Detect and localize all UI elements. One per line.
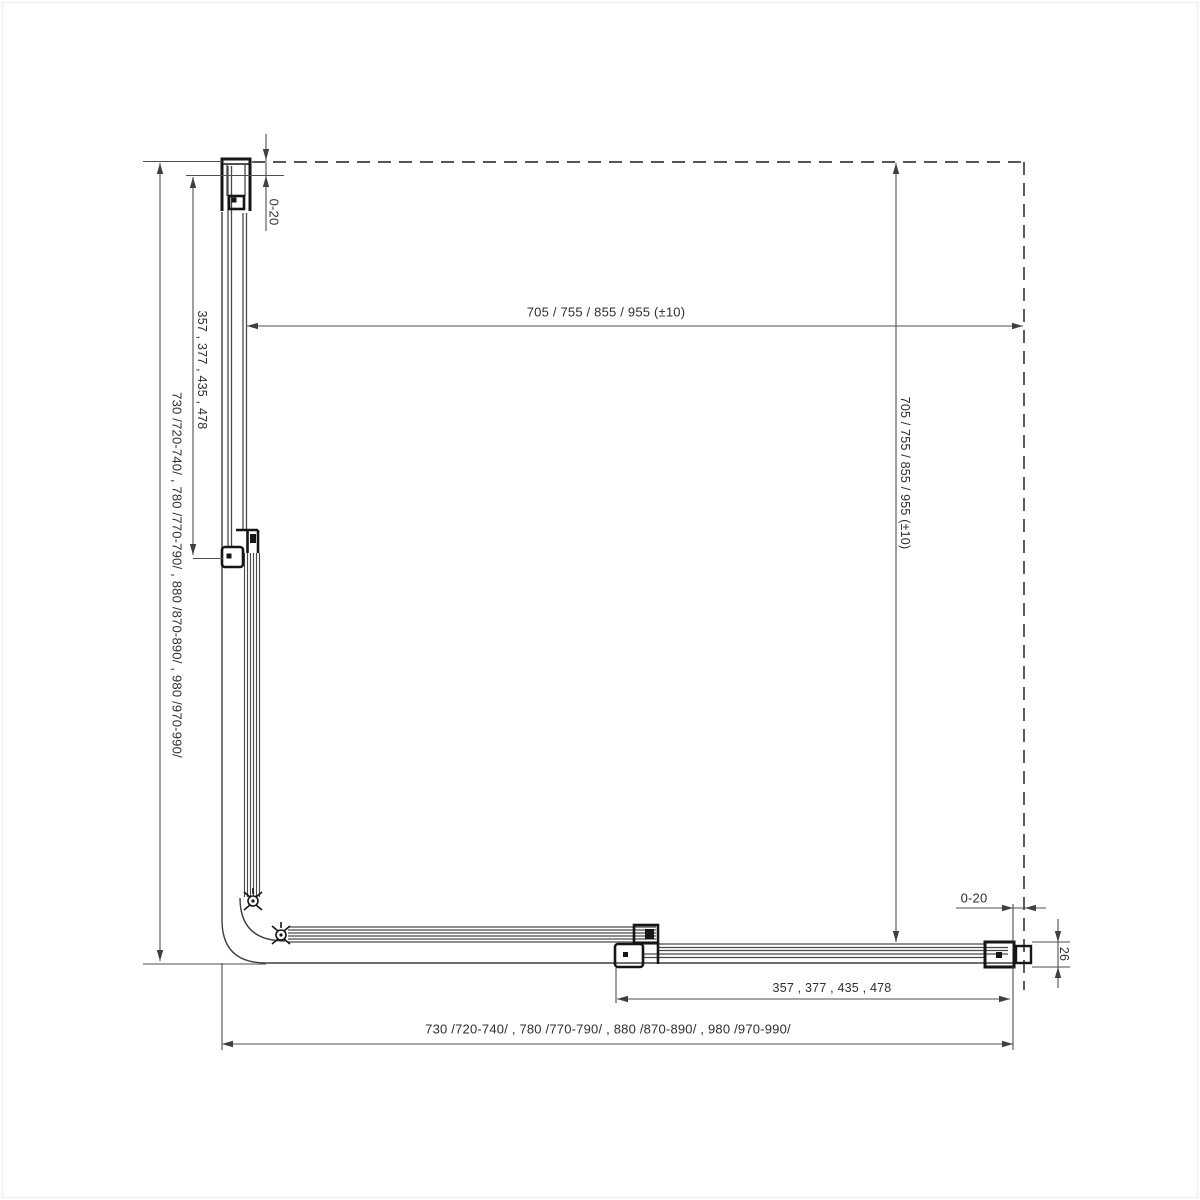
dimension-lines	[160, 134, 1058, 1044]
technical-drawing-canvas: 730 /720-740/ , 780 /770-790/ , 880 /870…	[0, 0, 1200, 1200]
dim-label-left-fixed: 357 , 377 , 435 , 478	[195, 311, 209, 430]
dim-label-wall-gap-right: 0-20	[961, 891, 988, 906]
dim-label-bottom-overall: 730 /720-740/ , 780 /770-790/ , 880 /870…	[425, 1022, 791, 1037]
dimension-extension-lines	[143, 162, 1070, 1051]
bottom-fixed-panel	[643, 944, 1008, 958]
dim-label-bottom-fixed: 357 , 377 , 435 , 478	[773, 981, 892, 995]
dim-label-top-width: 705 / 755 / 855 / 955 (±10)	[527, 305, 686, 320]
dim-label-profile-depth: 26	[1057, 947, 1071, 961]
dimension-arrowheads	[157, 149, 1061, 1047]
corner-roller-assemblies	[244, 888, 290, 944]
left-sliding-door-panel	[245, 553, 260, 897]
dim-label-wall-gap-top: 0-20	[267, 199, 282, 226]
top-left-wall-profile	[222, 159, 250, 211]
left-fixed-panel	[228, 166, 247, 547]
tray-edge	[222, 212, 1013, 963]
dim-label-left-overall: 730 /720-740/ , 780 /770-790/ , 880 /870…	[170, 392, 185, 758]
dim-label-right-depth: 705 / 755 / 855 / 955 (±10)	[898, 397, 912, 550]
shower-tray-outline	[222, 212, 1013, 963]
bottom-sliding-door-panel	[288, 927, 656, 942]
wall-dashed-lines	[252, 162, 1024, 990]
